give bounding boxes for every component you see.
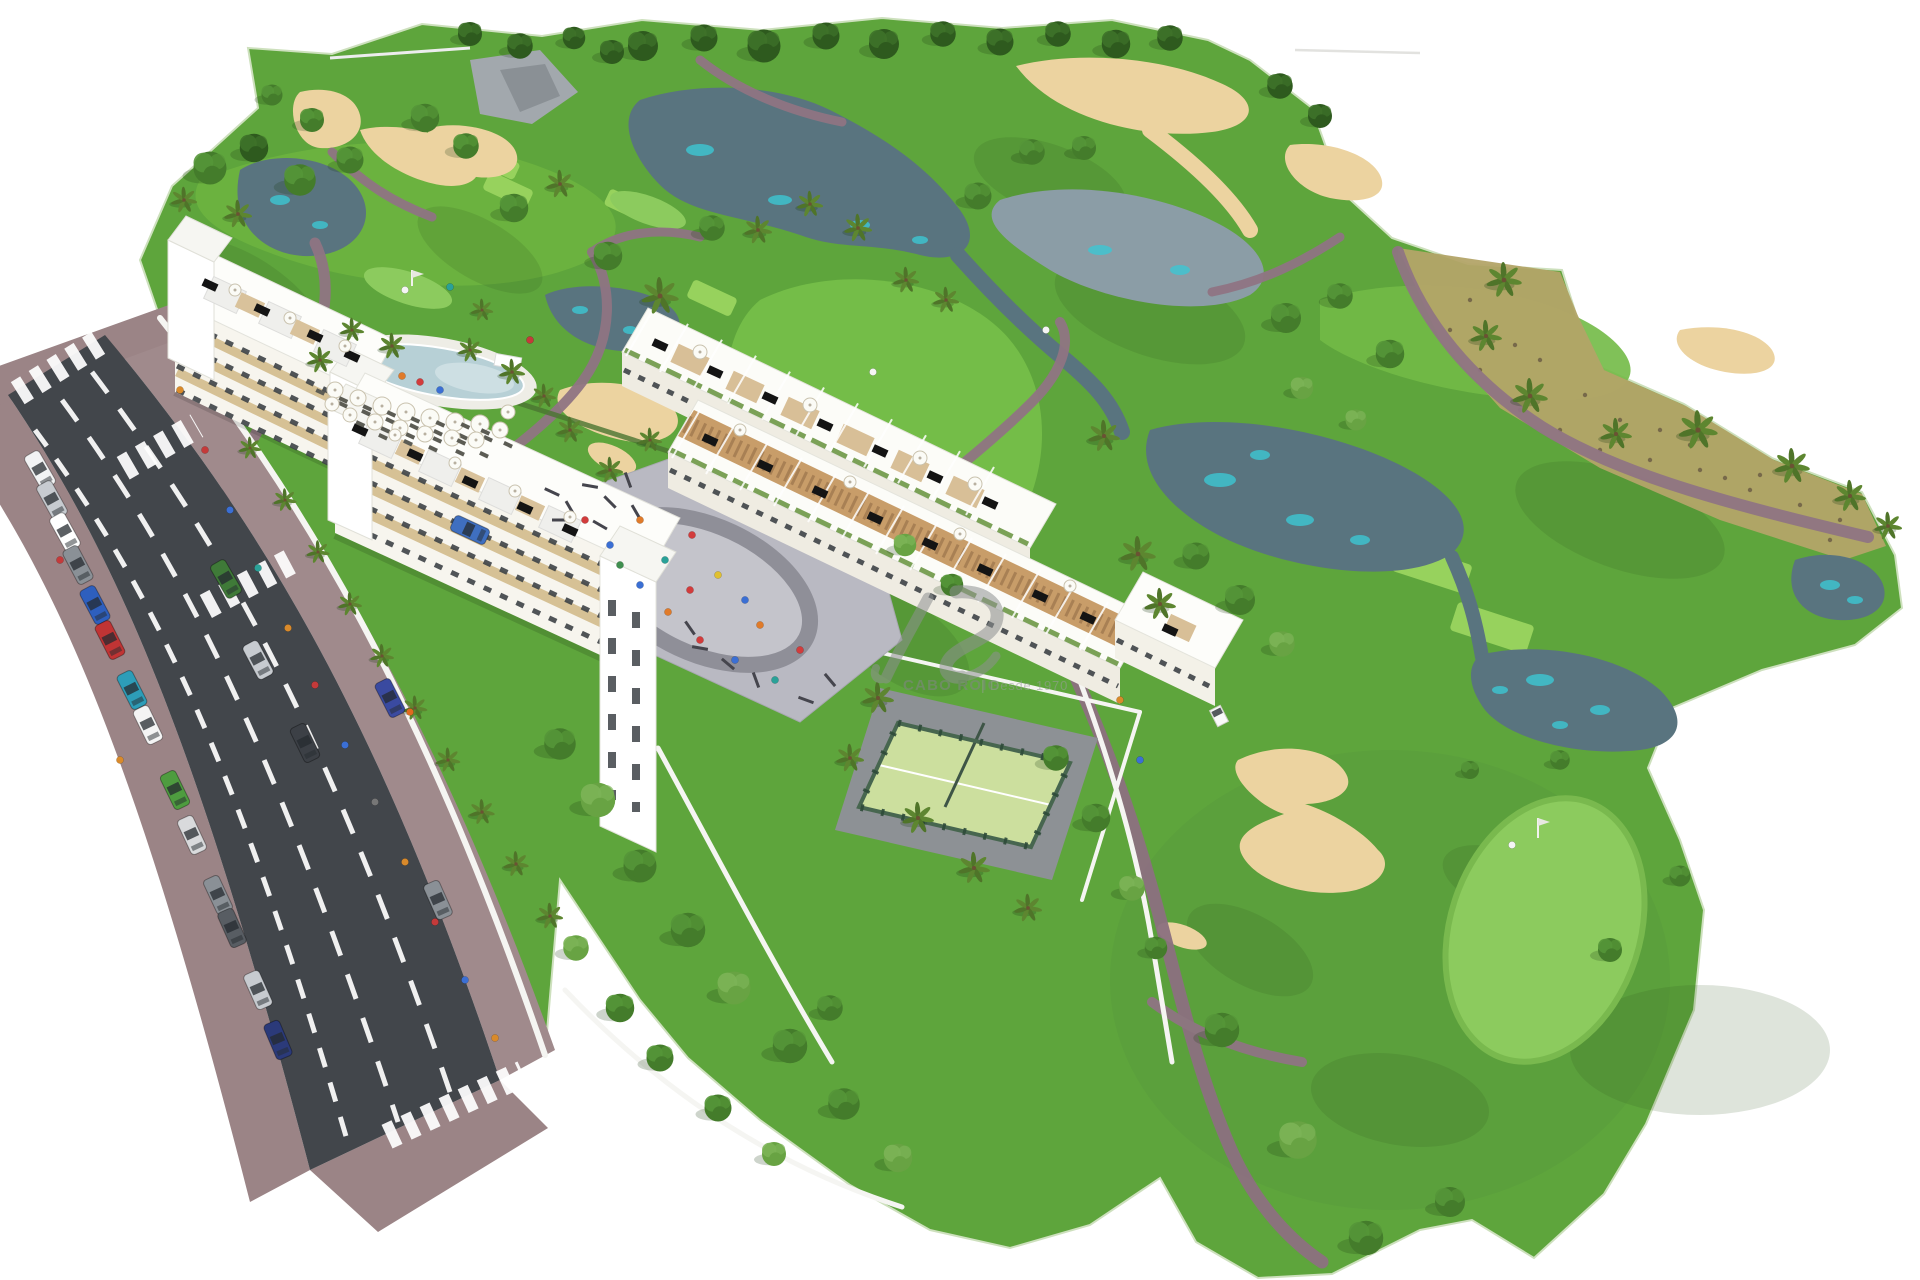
person bbox=[661, 556, 668, 563]
parasol bbox=[339, 340, 351, 352]
scrub-bush bbox=[1538, 358, 1542, 362]
person bbox=[696, 636, 703, 643]
parasol bbox=[693, 345, 707, 359]
water-highlight bbox=[1088, 245, 1112, 255]
person bbox=[398, 372, 405, 379]
person bbox=[371, 798, 378, 805]
person bbox=[341, 741, 348, 748]
person bbox=[1042, 326, 1049, 333]
water-highlight bbox=[270, 195, 290, 205]
scrub-bush bbox=[1723, 476, 1727, 480]
parasol bbox=[229, 284, 241, 296]
scrub-bush bbox=[1798, 503, 1802, 507]
water-highlight bbox=[1170, 265, 1190, 275]
person bbox=[461, 976, 468, 983]
water-highlight bbox=[1350, 535, 1370, 545]
parasol bbox=[1064, 580, 1076, 592]
person bbox=[56, 556, 63, 563]
watermark-separator: | bbox=[981, 677, 985, 693]
person bbox=[416, 378, 423, 385]
scrub-bush bbox=[1448, 328, 1452, 332]
parasol bbox=[954, 528, 966, 540]
water-highlight bbox=[1526, 674, 1554, 686]
person bbox=[636, 581, 643, 588]
person bbox=[406, 708, 413, 715]
tree bbox=[555, 935, 589, 961]
parasol bbox=[343, 408, 357, 422]
parasol bbox=[844, 476, 856, 488]
person bbox=[688, 531, 695, 538]
person bbox=[1116, 696, 1123, 703]
person bbox=[201, 446, 208, 453]
person bbox=[446, 283, 453, 290]
tree bbox=[183, 152, 227, 185]
person bbox=[606, 541, 613, 548]
scrub-bush bbox=[1658, 428, 1662, 432]
scrub-bush bbox=[1758, 473, 1762, 477]
person bbox=[616, 561, 623, 568]
person bbox=[311, 681, 318, 688]
scrub-bush bbox=[1698, 468, 1702, 472]
person bbox=[284, 624, 291, 631]
rendering-canvas: CABO ROIG | Desde 1970 bbox=[0, 0, 1920, 1280]
person bbox=[116, 756, 123, 763]
scrub-bush bbox=[1648, 458, 1652, 462]
range-rail-right bbox=[1295, 50, 1420, 53]
water-highlight bbox=[686, 144, 714, 156]
person bbox=[869, 368, 876, 375]
parasol bbox=[449, 457, 461, 469]
water-highlight bbox=[912, 236, 928, 244]
person bbox=[664, 608, 671, 615]
person bbox=[741, 596, 748, 603]
person bbox=[1508, 841, 1515, 848]
person bbox=[436, 386, 443, 393]
scrub-bush bbox=[1513, 343, 1517, 347]
water-highlight bbox=[1590, 705, 1610, 715]
parasol bbox=[509, 485, 521, 497]
parasol bbox=[803, 398, 817, 412]
building-a-tower-nw bbox=[168, 240, 214, 380]
parasol bbox=[389, 429, 401, 441]
person bbox=[686, 586, 693, 593]
parasol bbox=[734, 424, 746, 436]
person bbox=[491, 1034, 498, 1041]
water-highlight bbox=[1820, 580, 1840, 590]
parasol bbox=[564, 511, 576, 523]
tree bbox=[596, 994, 634, 1023]
parasol bbox=[501, 405, 515, 419]
person bbox=[401, 858, 408, 865]
parasol bbox=[968, 477, 982, 491]
watermark-tagline: Desde 1970 bbox=[990, 678, 1068, 693]
scrub-bush bbox=[1583, 393, 1587, 397]
water-highlight bbox=[1847, 596, 1863, 604]
parasol bbox=[284, 312, 296, 324]
person bbox=[581, 516, 588, 523]
water-highlight bbox=[572, 306, 588, 314]
water-highlight bbox=[1250, 450, 1270, 460]
person bbox=[226, 506, 233, 513]
watermark-brand: CABO ROIG bbox=[903, 677, 1000, 694]
person bbox=[1136, 756, 1143, 763]
person bbox=[176, 386, 183, 393]
person bbox=[796, 646, 803, 653]
person bbox=[636, 516, 643, 523]
scrub-bush bbox=[1618, 418, 1622, 422]
scrub-bush bbox=[1748, 488, 1752, 492]
parasol bbox=[913, 451, 927, 465]
person bbox=[731, 656, 738, 663]
person bbox=[756, 621, 763, 628]
scrub-bush bbox=[1828, 538, 1832, 542]
person bbox=[431, 918, 438, 925]
water-highlight bbox=[1552, 721, 1568, 729]
water-highlight bbox=[1204, 473, 1236, 487]
scrub-bush bbox=[1838, 518, 1842, 522]
water-highlight bbox=[1492, 686, 1508, 694]
water-highlight bbox=[768, 195, 792, 205]
water-highlight bbox=[1286, 514, 1314, 526]
person bbox=[714, 571, 721, 578]
person bbox=[254, 564, 261, 571]
parasol bbox=[325, 397, 339, 411]
water-highlight bbox=[312, 221, 328, 229]
person bbox=[401, 286, 408, 293]
person bbox=[526, 336, 533, 343]
masterplan-rendering: CABO ROIG | Desde 1970 bbox=[0, 0, 1920, 1280]
person bbox=[771, 676, 778, 683]
scrub-bush bbox=[1468, 298, 1472, 302]
tree bbox=[638, 1045, 674, 1072]
